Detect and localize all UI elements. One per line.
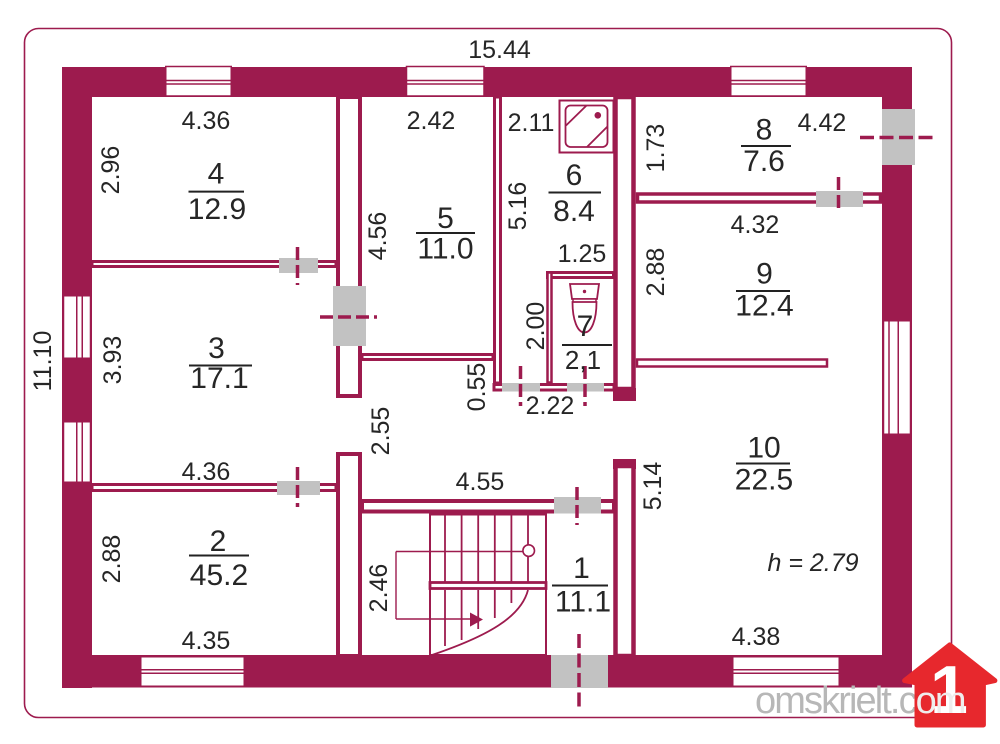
svg-text:9: 9 bbox=[756, 258, 773, 291]
svg-text:8.4: 8.4 bbox=[553, 195, 595, 228]
svg-text:2.55: 2.55 bbox=[367, 407, 395, 456]
svg-text:1: 1 bbox=[573, 552, 590, 585]
svg-text:2: 2 bbox=[210, 525, 227, 558]
svg-text:1.25: 1.25 bbox=[558, 240, 607, 268]
svg-text:2.22: 2.22 bbox=[526, 392, 575, 420]
svg-text:4.36: 4.36 bbox=[182, 107, 231, 135]
svg-text:11.10: 11.10 bbox=[29, 331, 57, 392]
svg-text:17.1: 17.1 bbox=[190, 362, 248, 395]
svg-text:11.1: 11.1 bbox=[555, 586, 611, 619]
svg-text:4.38: 4.38 bbox=[732, 623, 781, 651]
svg-text:7.6: 7.6 bbox=[743, 145, 785, 178]
svg-text:4.32: 4.32 bbox=[731, 211, 780, 239]
svg-text:7: 7 bbox=[577, 310, 594, 343]
svg-text:2.00: 2.00 bbox=[522, 302, 550, 351]
svg-text:2.88: 2.88 bbox=[98, 535, 126, 584]
svg-text:2.96: 2.96 bbox=[97, 146, 125, 195]
svg-text:12.4: 12.4 bbox=[735, 290, 793, 323]
svg-text:1.73: 1.73 bbox=[642, 124, 670, 173]
svg-text:4.42: 4.42 bbox=[798, 109, 847, 137]
svg-text:5.14: 5.14 bbox=[639, 462, 667, 511]
svg-text:4: 4 bbox=[208, 158, 225, 191]
svg-text:0.55: 0.55 bbox=[463, 363, 491, 412]
svg-text:12.9: 12.9 bbox=[188, 193, 246, 226]
svg-text:h = 2.79: h = 2.79 bbox=[767, 549, 858, 577]
svg-text:11.0: 11.0 bbox=[417, 233, 473, 266]
svg-text:2.42: 2.42 bbox=[407, 107, 456, 135]
svg-text:3: 3 bbox=[208, 332, 225, 365]
svg-text:3.93: 3.93 bbox=[99, 336, 127, 385]
svg-text:6: 6 bbox=[566, 159, 583, 192]
svg-text:2.11: 2.11 bbox=[508, 109, 555, 137]
svg-text:4.35: 4.35 bbox=[182, 627, 231, 655]
svg-text:15.44: 15.44 bbox=[468, 36, 531, 64]
svg-text:2.88: 2.88 bbox=[642, 248, 670, 297]
svg-text:5.16: 5.16 bbox=[504, 182, 532, 231]
svg-text:22.5: 22.5 bbox=[735, 464, 793, 497]
svg-text:4.56: 4.56 bbox=[364, 212, 392, 261]
svg-text:4.36: 4.36 bbox=[182, 458, 231, 486]
svg-text:8: 8 bbox=[756, 114, 773, 147]
svg-text:4.55: 4.55 bbox=[456, 468, 505, 496]
svg-text:45.2: 45.2 bbox=[190, 559, 248, 592]
svg-text:2,1: 2,1 bbox=[565, 345, 601, 375]
svg-text:2.46: 2.46 bbox=[365, 564, 393, 613]
svg-text:10: 10 bbox=[747, 432, 780, 465]
svg-text:5: 5 bbox=[437, 202, 454, 235]
